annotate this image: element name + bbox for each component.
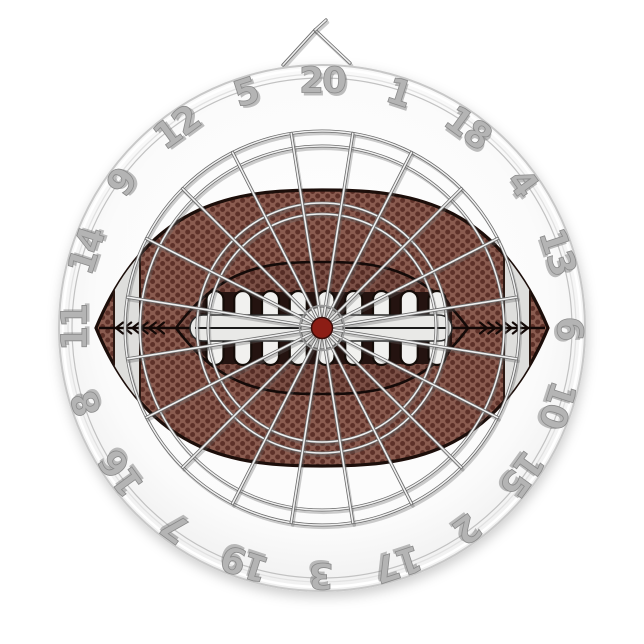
product-image-canvas: 2020111818441313661010151522171733191977… [0, 0, 644, 644]
sector-number-6: 66 [546, 316, 590, 342]
svg-text:3: 3 [310, 555, 333, 596]
bullseye [312, 318, 333, 339]
sector-number-20: 2020 [299, 61, 348, 105]
svg-text:20: 20 [299, 61, 346, 102]
sector-number-3: 33 [308, 552, 333, 596]
sector-number-11: 1111 [55, 303, 99, 351]
football-dartboard: 2020111818441313661010151522171733191977… [0, 0, 644, 644]
svg-text:11: 11 [55, 305, 96, 351]
svg-text:6: 6 [549, 316, 590, 340]
